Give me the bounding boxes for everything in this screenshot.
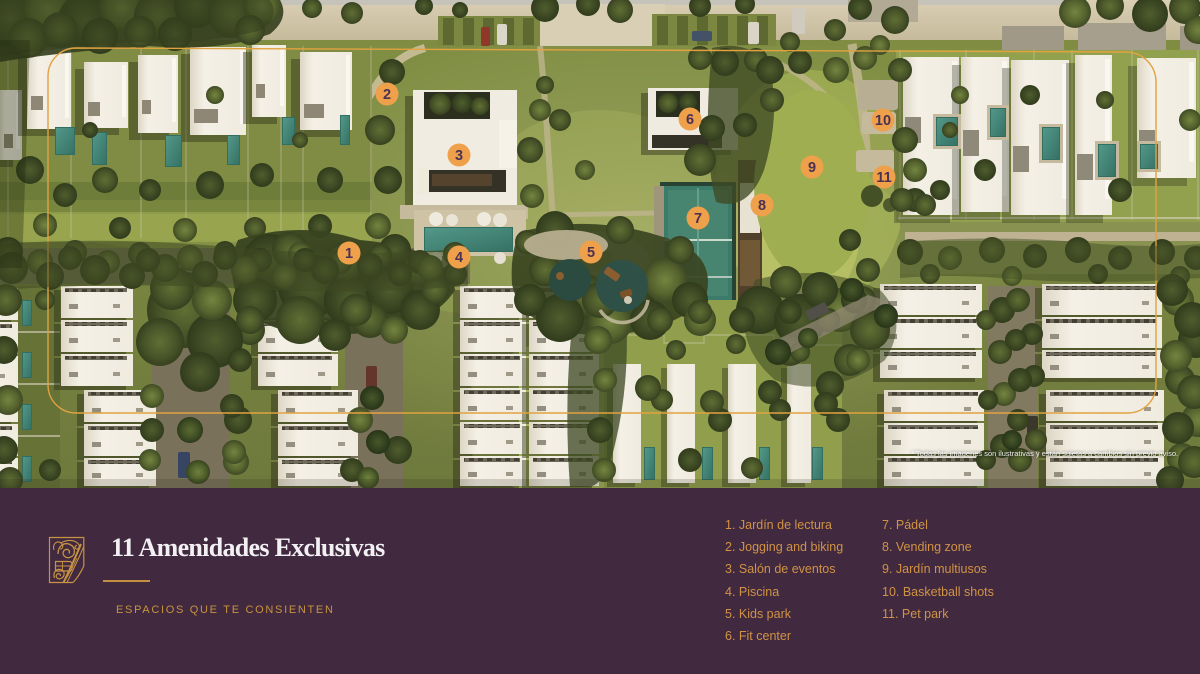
svg-text:8: 8: [758, 198, 766, 214]
svg-text:11: 11: [876, 170, 891, 186]
svg-text:4: 4: [455, 250, 463, 266]
svg-text:1: 1: [345, 246, 353, 262]
svg-text:5: 5: [587, 245, 595, 261]
svg-text:7: 7: [694, 211, 702, 227]
svg-text:6: 6: [686, 112, 694, 128]
svg-text:3: 3: [455, 148, 463, 164]
svg-text:10: 10: [875, 113, 891, 129]
svg-text:9: 9: [808, 160, 816, 176]
svg-text:2: 2: [383, 87, 391, 103]
